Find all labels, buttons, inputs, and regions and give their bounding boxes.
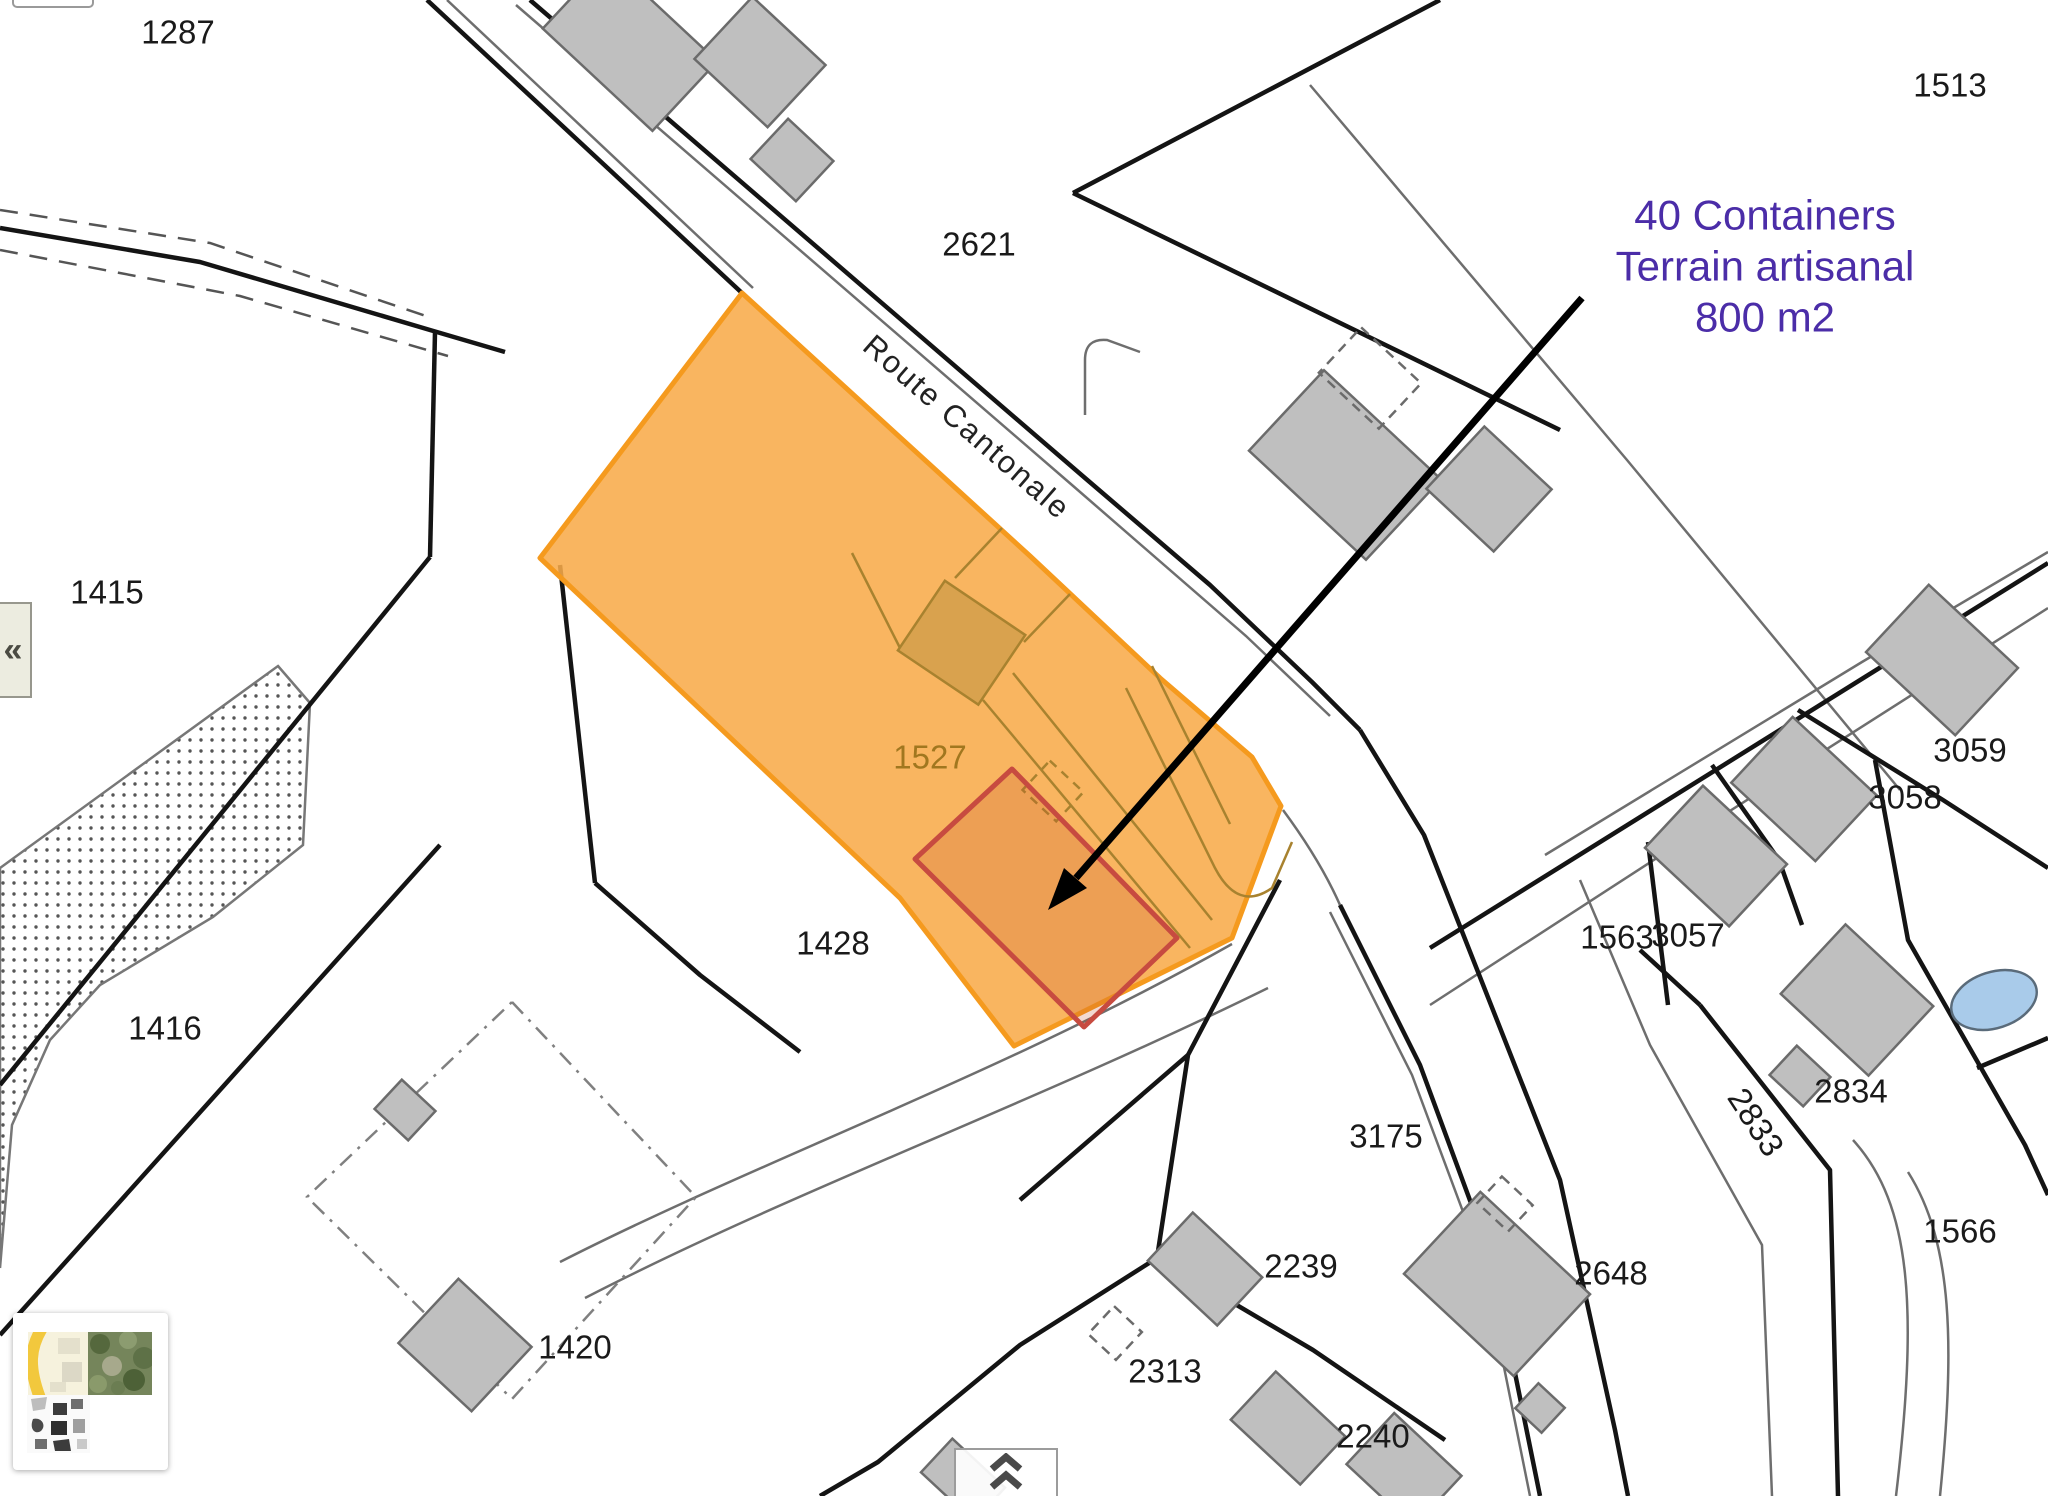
parcel-label-2621: 2621 (942, 226, 1015, 263)
chevrons-up-icon (984, 1453, 1028, 1493)
dashed-track-line (0, 250, 448, 356)
bw-map-tile[interactable] (27, 1395, 90, 1453)
map-layers: 1287151326211415142814161420317522392313… (0, 0, 2048, 1496)
parcel-label-1527: 1527 (893, 739, 966, 776)
aerial-map-thumbnail (88, 1332, 152, 1395)
parcel-label-2239: 2239 (1264, 1248, 1337, 1285)
parcel-label-2240: 2240 (1336, 1418, 1409, 1455)
bw-map-thumbnail (27, 1395, 90, 1453)
building-footprint (375, 1080, 436, 1141)
building-footprint (1426, 427, 1551, 552)
street-map-thumbnail (28, 1332, 88, 1395)
parcel-label-1566: 1566 (1923, 1213, 1996, 1250)
building-footprint (1515, 1383, 1565, 1432)
parcel-label-3057: 3057 (1651, 917, 1724, 954)
parcel-boundary-line (595, 883, 800, 1052)
building-footprint (1231, 1371, 1345, 1484)
parcel-label-2648: 2648 (1574, 1255, 1647, 1292)
annotation-line-3: 800 m2 (1695, 294, 1835, 341)
parcel-label-1420: 1420 (538, 1329, 611, 1366)
parcel-boundary-line (1977, 1038, 2048, 1068)
building-footprint (398, 1279, 531, 1412)
road-edge-line (1330, 912, 1530, 1496)
street-map-tile[interactable] (28, 1332, 88, 1395)
expand-panel-button[interactable] (954, 1448, 1058, 1496)
road-edge-curve (1853, 1140, 1908, 1496)
parcel-boundary-line (1360, 730, 1628, 1496)
parcel-boundary-line (0, 228, 505, 352)
parcel-label-2833: 2833 (1720, 1081, 1791, 1163)
collapse-panel-button[interactable]: « (0, 602, 32, 698)
parcel-boundary-line (1020, 1055, 1188, 1200)
building-footprint (543, 0, 717, 131)
parcel-label-1287: 1287 (141, 14, 214, 51)
parcel-label-1563: 1563 (1580, 919, 1653, 956)
chevrons-left-icon: « (4, 631, 23, 670)
building-footprint (694, 0, 825, 127)
parcel-label-3058: 3058 (1868, 779, 1941, 816)
annotation-line-1: 40 Containers (1634, 192, 1896, 239)
parcel-label-1415: 1415 (70, 574, 143, 611)
basemap-switcher[interactable] (13, 1313, 168, 1470)
parcel-label-1416: 1416 (128, 1010, 201, 1047)
parcel-label-3059: 3059 (1933, 732, 2006, 769)
building-footprint (1866, 585, 2018, 735)
parcel-boundary-line (1640, 950, 1700, 1005)
parcel-label-2313: 2313 (1128, 1353, 1201, 1390)
aerial-map-tile[interactable] (88, 1332, 152, 1395)
parcel-boundary-line (430, 332, 435, 557)
parcel-label-1428: 1428 (796, 925, 869, 962)
cadastral-map-svg[interactable]: 1287151326211415142814161420317522392313… (0, 0, 2048, 1496)
building-footprint (751, 119, 834, 202)
parcel-label-3175: 3175 (1349, 1118, 1422, 1155)
top-left-control-fragment[interactable] (12, 0, 94, 8)
parcel-label-2834: 2834 (1814, 1073, 1887, 1110)
forest-area (0, 666, 310, 1268)
road-edge-curve (1085, 340, 1140, 415)
annotation-line-2: Terrain artisanal (1616, 243, 1915, 290)
parcel-boundary-line (1073, 0, 1440, 193)
road-edge-curve (1283, 810, 1340, 905)
dashed-track-line (0, 210, 432, 318)
parcel-label-1513: 1513 (1913, 67, 1986, 104)
parcel-boundary-line (560, 565, 595, 883)
